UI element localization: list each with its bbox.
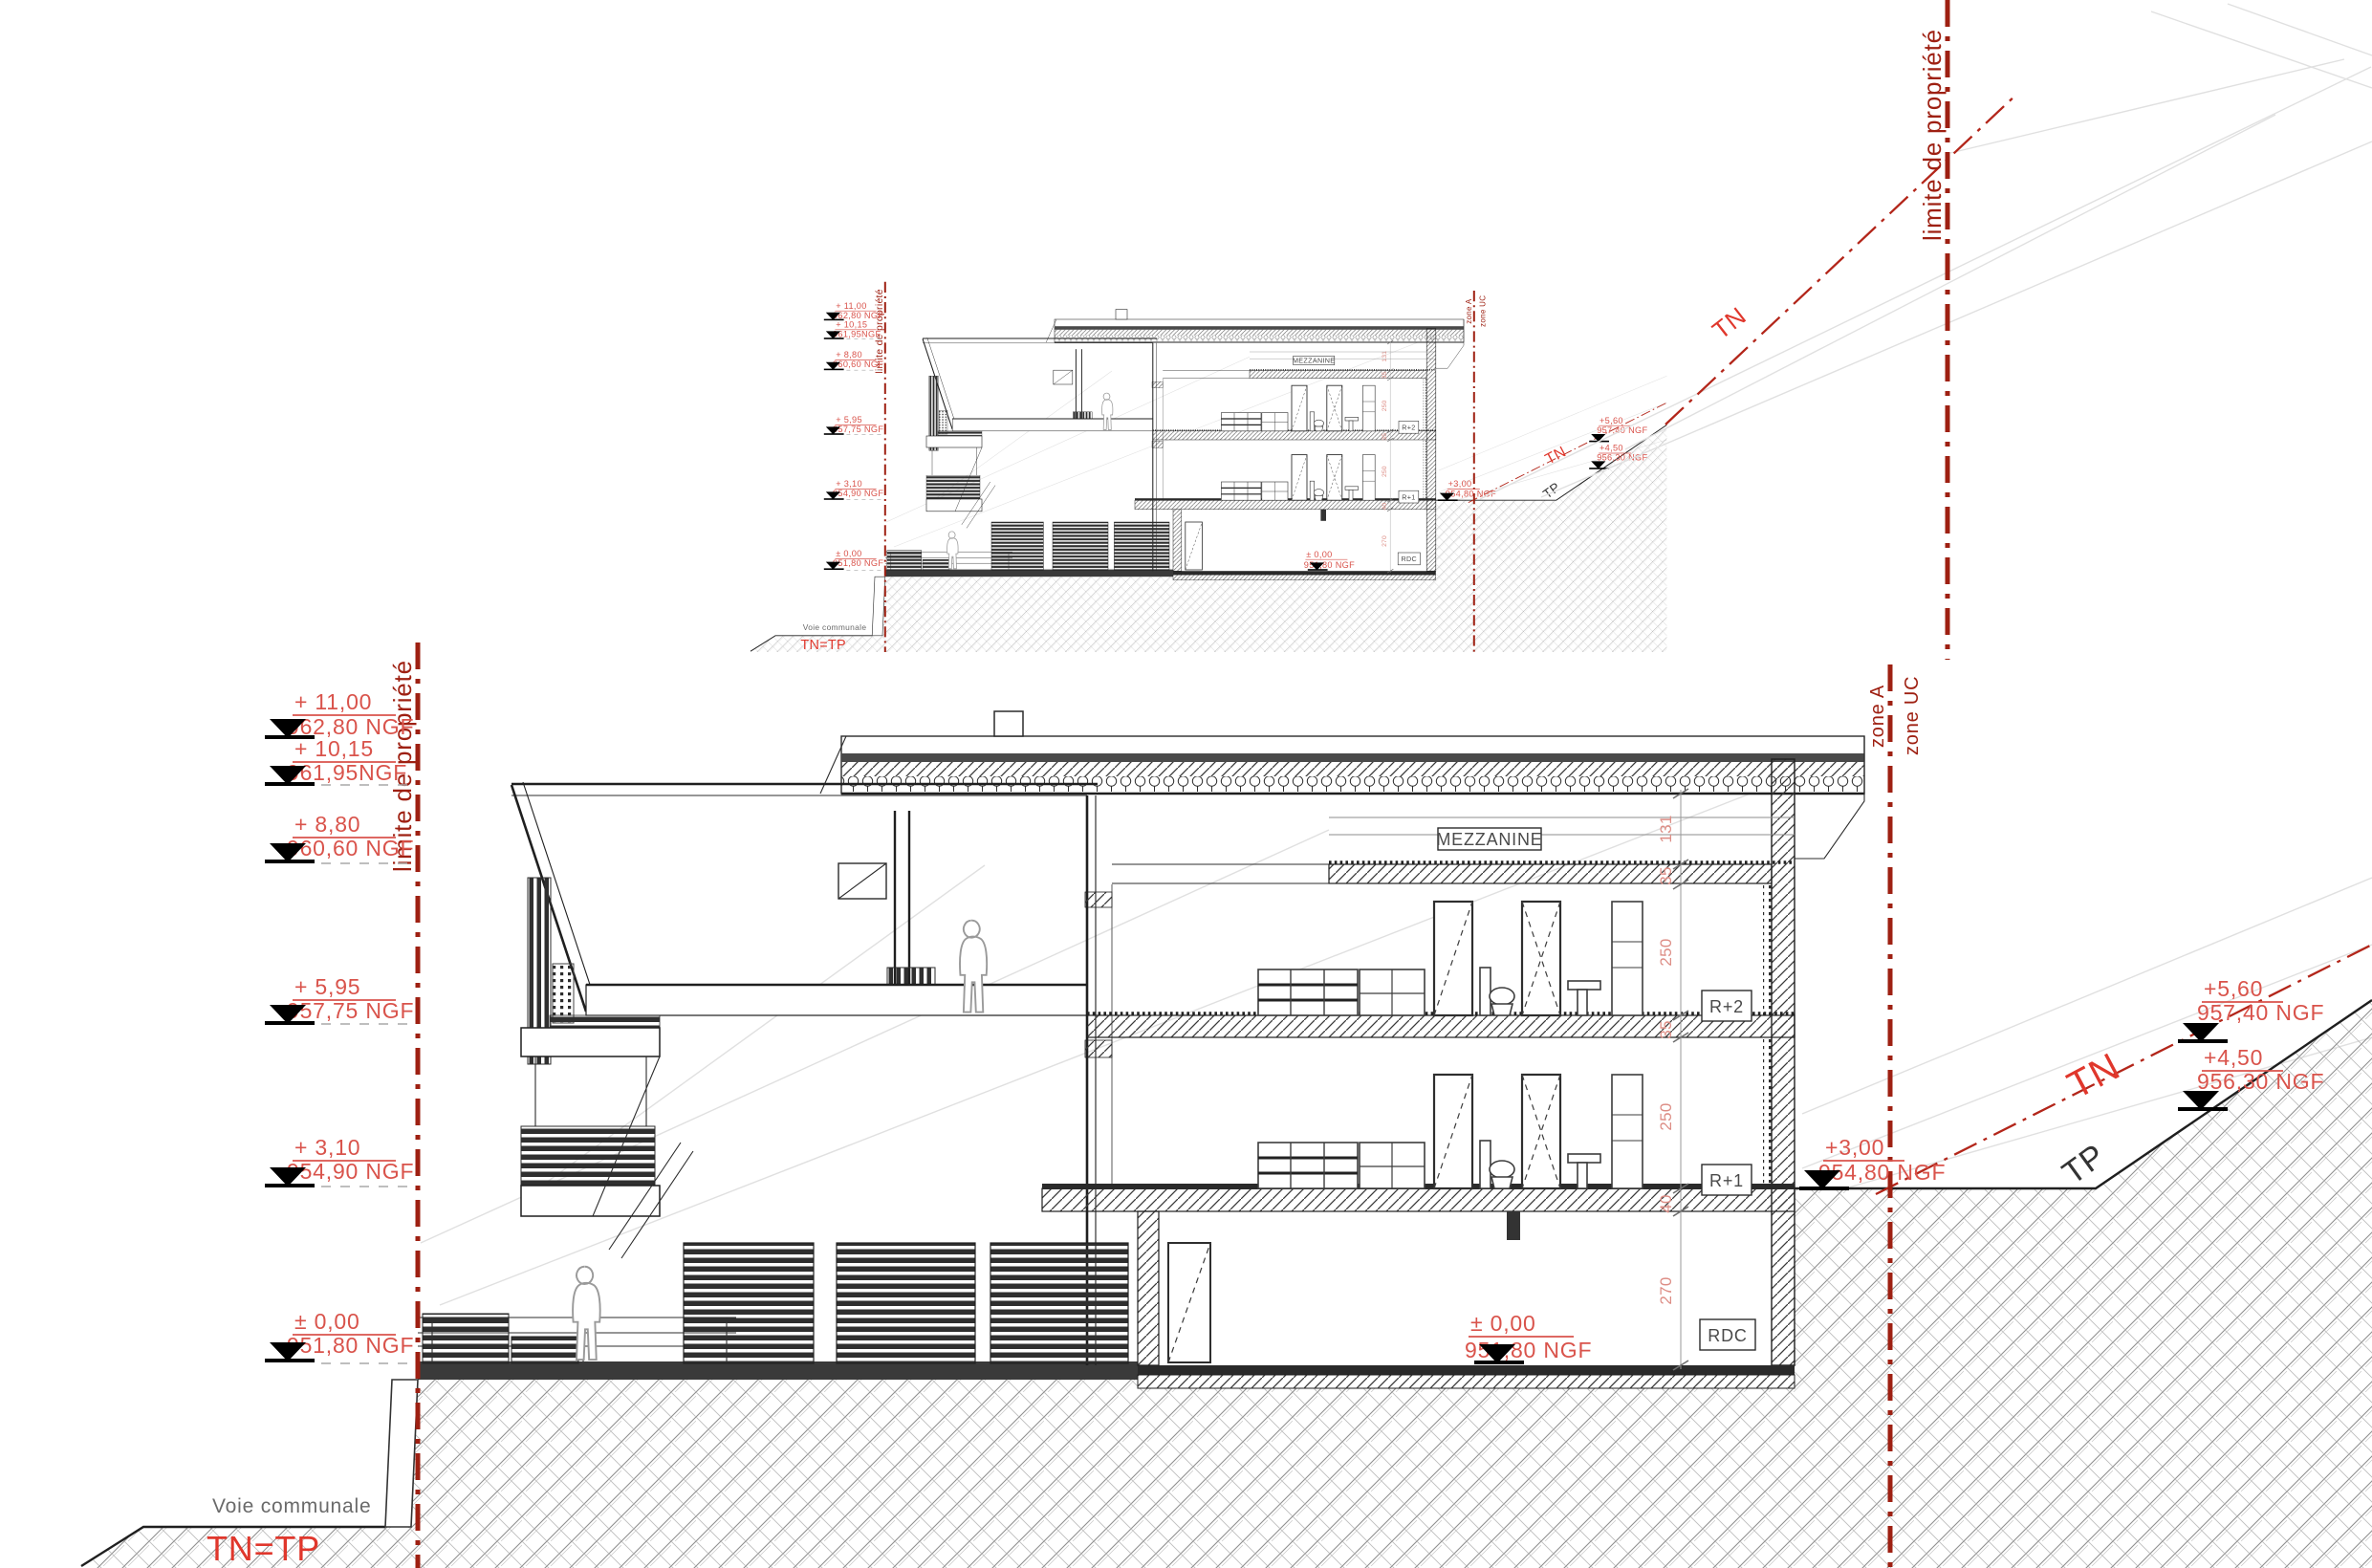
level-ngf: 956,30 NGF — [2197, 1069, 2324, 1094]
balcony-slab — [586, 985, 1087, 1015]
dim-270: 270 — [1657, 1276, 1675, 1304]
rdc-garage — [1138, 1211, 1520, 1365]
interior-door — [1522, 902, 1560, 1015]
level-value: + 5,95 — [294, 974, 360, 999]
large-section-drawing: MEZZANINE — [81, 642, 2372, 1568]
building-section: MEZZANINE — [418, 711, 1864, 1388]
level-ngf: 951,80 NGF — [287, 1333, 414, 1358]
level-value: + 10,15 — [294, 736, 374, 761]
level-5-95: + 5,95 957,75 NGF — [265, 974, 415, 1025]
interior-level-value: ± 0,00 — [1470, 1311, 1536, 1336]
floor-label-r1: R+1 — [1709, 1171, 1744, 1190]
planter-louver-box — [423, 1314, 509, 1363]
level-ngf: 954,90 NGF — [287, 1159, 414, 1184]
level-value: + 3,10 — [294, 1135, 360, 1160]
mezzanine-level: MEZZANINE — [1112, 817, 1795, 883]
level-ngf: 957,75 NGF — [287, 998, 414, 1023]
floor-label-rdc: RDC — [1708, 1326, 1747, 1345]
level-value: + 8,80 — [294, 812, 360, 837]
interior-level-ngf: 951,80 NGF — [1465, 1338, 1592, 1362]
roof-vent — [994, 711, 1023, 736]
floor-label-boxes: R+2 R+1 RDC — [1700, 991, 1755, 1350]
interior-door — [1434, 902, 1472, 1015]
ground-hatch — [81, 1000, 2372, 1568]
garage-gates — [684, 1243, 1128, 1363]
dim-250b: 250 — [1657, 1102, 1675, 1130]
level-marker-icon — [2178, 1091, 2228, 1111]
level-ngf: 961,95NGF — [287, 760, 407, 785]
wardrobe-column — [1612, 902, 1643, 1015]
planter-louver-box — [511, 1337, 578, 1363]
road-label: Voie communale — [212, 1495, 371, 1517]
level-value: +4,50 — [2204, 1045, 2263, 1070]
interior-level-marker: ± 0,00 951,80 NGF — [1465, 1311, 1592, 1364]
forecourt-paving — [418, 1361, 1138, 1380]
mezzanine-slab — [1329, 864, 1772, 883]
tn-equals-tp-label: TN=TP — [207, 1529, 320, 1568]
architectural-section-sheet: MEZZANINE — [0, 0, 2372, 1568]
zone-a-label: zone A — [1867, 685, 1888, 748]
basin-fixture — [1568, 981, 1600, 1015]
zone-uc-label: zone UC — [1902, 676, 1923, 755]
property-limit-top-right-label: limite de propriété — [1918, 29, 1947, 241]
mezzanine-label: MEZZANINE — [1436, 830, 1542, 849]
shelf-unit — [1258, 969, 1358, 1015]
level-ngf: 957,40 NGF — [2197, 1000, 2324, 1025]
tn-label-upper: TN — [1707, 301, 1752, 345]
unit-furniture-row-r1 — [1258, 1075, 1643, 1188]
section-drawing-svg: MEZZANINE — [0, 0, 2372, 1568]
dim-250a: 250 — [1657, 938, 1675, 966]
right-wall — [1772, 759, 1795, 1365]
level-value: ± 0,00 — [294, 1309, 360, 1334]
tn-label: TN — [2061, 1045, 2127, 1107]
level-value: +5,60 — [2204, 976, 2263, 1001]
cabinet-unit — [1360, 969, 1425, 1015]
level-value: + 11,00 — [294, 689, 372, 714]
dim-35a: 35 — [1657, 866, 1675, 885]
terrace-louver-screen — [521, 1126, 655, 1186]
tn-terrain-line-upper — [1665, 94, 2017, 425]
dim-131: 131 — [1657, 815, 1675, 842]
level-5-60: +5,60 957,40 NGF — [2178, 976, 2324, 1043]
level-ngf: 960,60 NGF — [287, 836, 414, 860]
dim-40: 40 — [1657, 1194, 1675, 1213]
level-marker-icon — [2178, 1023, 2228, 1043]
level-3-10: + 3,10 954,90 NGF — [265, 1135, 415, 1187]
level-3-00: +3,00 954,80 NGF — [1799, 1135, 1946, 1190]
small-section-drawing — [751, 282, 1666, 653]
level-value: +3,00 — [1825, 1135, 1884, 1160]
toilet-fixture — [1480, 968, 1514, 1015]
level-0-00: ± 0,00 951,80 NGF — [265, 1309, 415, 1363]
floor-label-r2: R+2 — [1709, 997, 1744, 1016]
ceiling-stub-wall — [1507, 1211, 1520, 1240]
dim-35b: 35 — [1657, 1020, 1675, 1039]
unit-furniture-row — [1258, 902, 1643, 1015]
